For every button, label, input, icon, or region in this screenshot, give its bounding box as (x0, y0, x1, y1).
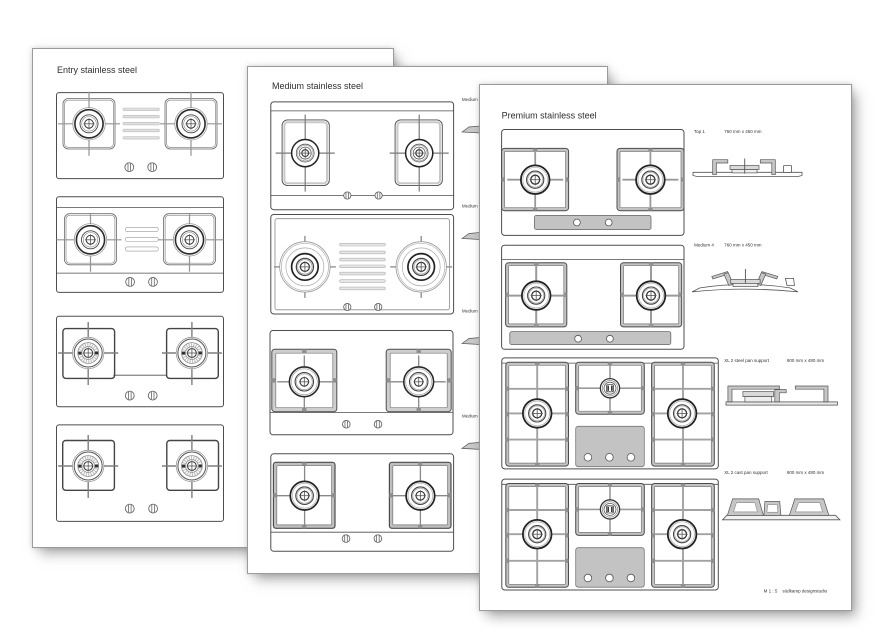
svg-text:XL 2 cast pan support: XL 2 cast pan support (724, 470, 768, 475)
svg-text:M 1 : 5 südkamp designstudi: M 1 : 5 südkamp designstudio (764, 589, 828, 594)
svg-text:900 mm x 480 mm: 900 mm x 480 mm (787, 470, 825, 475)
svg-text:900 mm x 480 mm: 900 mm x 480 mm (787, 358, 825, 363)
svg-text:Medium stainless steel: Medium stainless steel (272, 81, 363, 91)
svg-text:Entry stainless steel: Entry stainless steel (57, 65, 137, 75)
svg-text:760 mm x 450 mm: 760 mm x 450 mm (724, 129, 762, 134)
svg-text:Top 1: Top 1 (694, 129, 706, 134)
svg-text:Medium 4: Medium 4 (694, 243, 714, 248)
svg-text:XL 2 steel pan support: XL 2 steel pan support (724, 358, 770, 363)
svg-text:Premium stainless steel: Premium stainless steel (502, 111, 597, 121)
svg-text:760 mm x 450 mm: 760 mm x 450 mm (724, 243, 762, 248)
